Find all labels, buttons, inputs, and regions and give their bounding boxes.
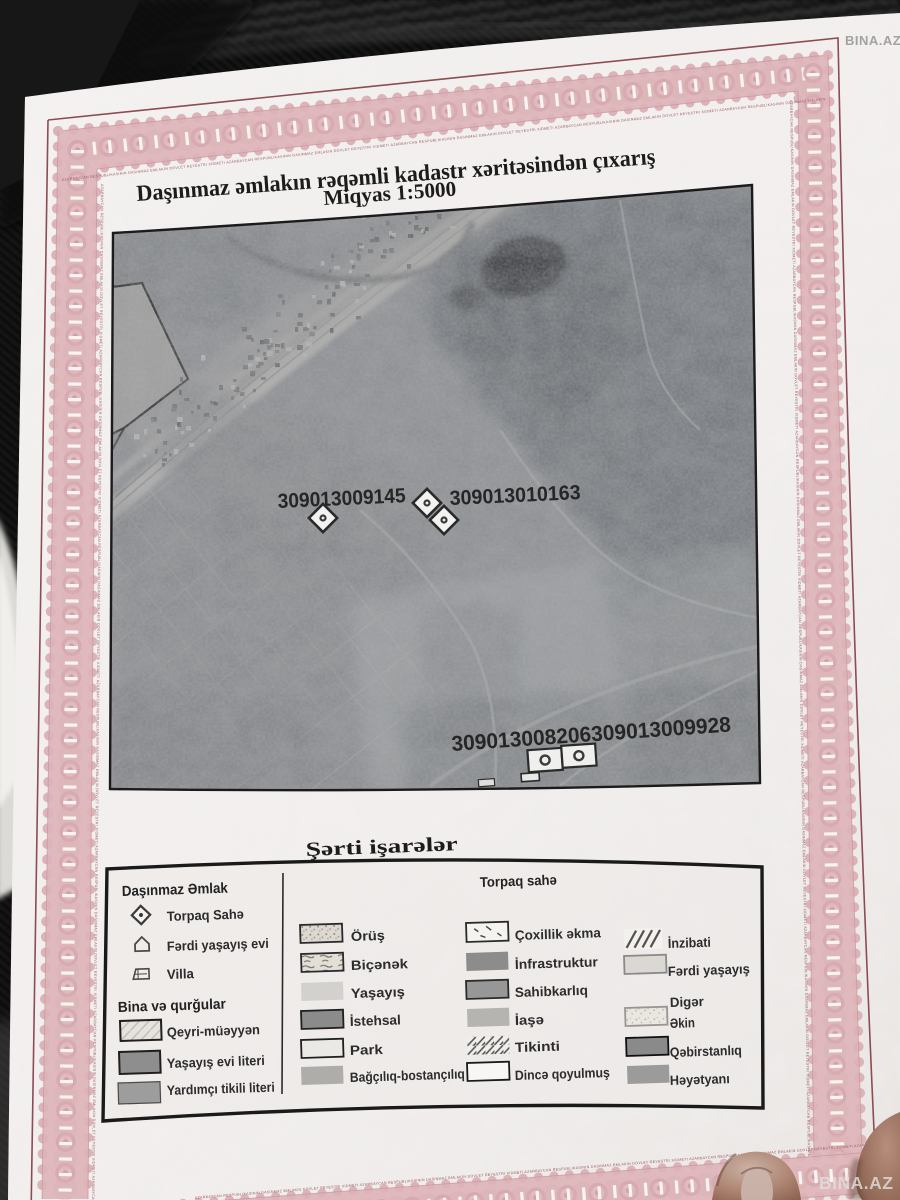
svg-text:Sahibkarlıq: Sahibkarlıq <box>515 983 588 1000</box>
svg-text:Fərdi yaşayış evi: Fərdi yaşayış evi <box>167 936 269 954</box>
svg-text:Yaşayış: Yaşayış <box>351 984 405 1001</box>
svg-text:Qəbirstanlıq: Qəbirstanlıq <box>670 1043 742 1060</box>
svg-text:BINA.AZ: BINA.AZ <box>845 33 900 48</box>
svg-text:Yaşayış evi literi: Yaşayış evi literi <box>167 1053 265 1071</box>
svg-text:Bina və qurğular: Bina və qurğular <box>118 997 227 1016</box>
svg-text:Biçənək: Biçənək <box>351 956 409 973</box>
svg-text:Dincə qoyulmuş: Dincə qoyulmuş <box>515 1065 610 1083</box>
svg-text:Tikinti: Tikinti <box>515 1039 560 1055</box>
svg-text:İstehsal: İstehsal <box>350 1012 401 1029</box>
svg-text:Villa: Villa <box>167 966 195 982</box>
svg-text:Qeyri-müəyyən: Qeyri-müəyyən <box>167 1022 260 1040</box>
svg-text:Çoxillik əkma: Çoxillik əkma <box>515 925 602 943</box>
svg-text:Digər: Digər <box>670 994 705 1010</box>
svg-text:İaşə: İaşə <box>515 1012 545 1028</box>
svg-text:İnzibati: İnzibati <box>668 935 711 951</box>
svg-text:İnfrastruktur: İnfrastruktur <box>515 954 599 972</box>
svg-text:BINA.AZ: BINA.AZ <box>819 1173 893 1193</box>
svg-text:Park: Park <box>350 1042 384 1058</box>
svg-text:Örüş: Örüş <box>351 928 385 944</box>
svg-text:Həyətyanı: Həyətyanı <box>670 1071 730 1088</box>
svg-text:Əkin: Əkin <box>670 1015 695 1031</box>
svg-text:Torpaq sahə: Torpaq sahə <box>480 872 558 890</box>
svg-text:Fərdi yaşayış: Fərdi yaşayış <box>668 961 750 979</box>
svg-text:Torpaq Sahə: Torpaq Sahə <box>167 907 245 924</box>
svg-text:Daşınmaz Əmlak: Daşınmaz Əmlak <box>122 881 229 900</box>
